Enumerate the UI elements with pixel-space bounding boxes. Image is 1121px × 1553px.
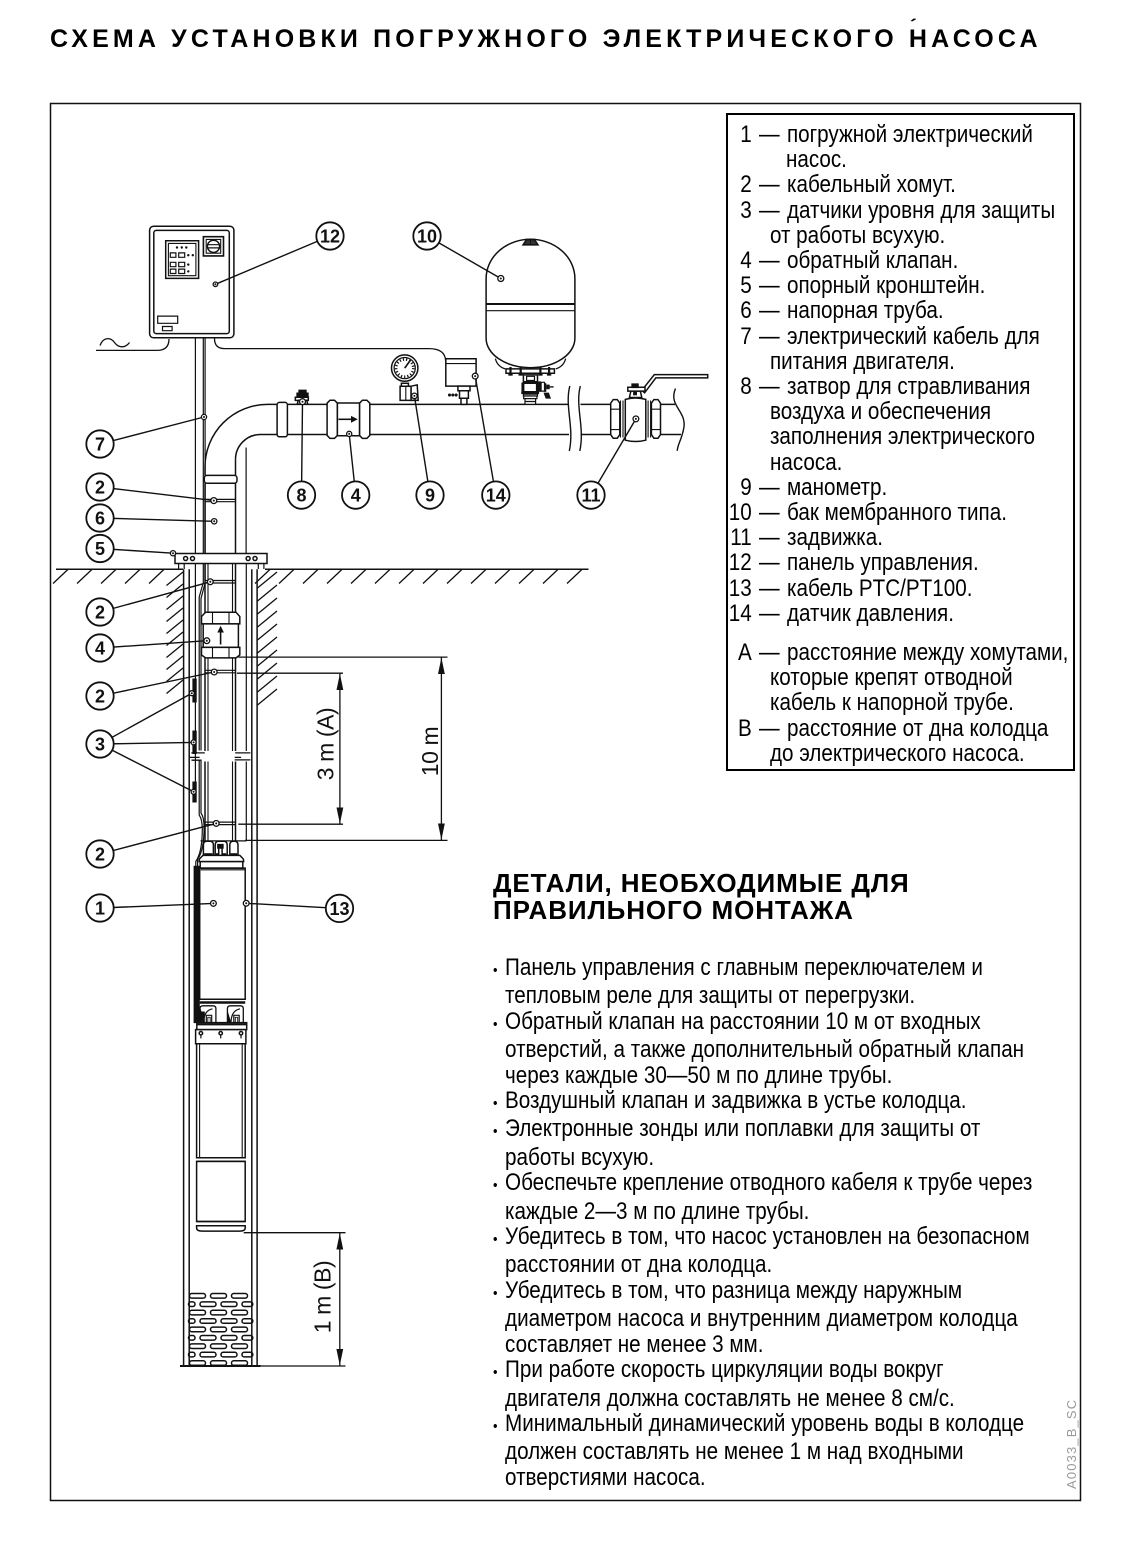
svg-text:4: 4 [351,486,361,506]
svg-text:11: 11 [581,486,600,506]
svg-text:13: 13 [329,899,349,919]
svg-text:7: 7 [95,434,105,454]
svg-text:1 m (B): 1 m (B) [310,1261,336,1334]
svg-text:3: 3 [95,734,105,754]
svg-text:10: 10 [417,226,437,246]
svg-text:6: 6 [95,508,105,528]
svg-text:2: 2 [95,686,105,706]
svg-text:14: 14 [486,486,506,506]
svg-text:3 m (A): 3 m (A) [313,708,339,781]
svg-text:1: 1 [95,898,105,918]
svg-text:2: 2 [95,477,105,497]
svg-text:8: 8 [296,486,306,506]
svg-text:4: 4 [95,638,105,658]
svg-text:2: 2 [95,844,105,864]
svg-text:9: 9 [425,486,435,506]
svg-text:5: 5 [95,539,105,559]
svg-text:12: 12 [320,226,340,246]
svg-text:2: 2 [95,602,105,622]
svg-text:10 m: 10 m [417,727,443,777]
